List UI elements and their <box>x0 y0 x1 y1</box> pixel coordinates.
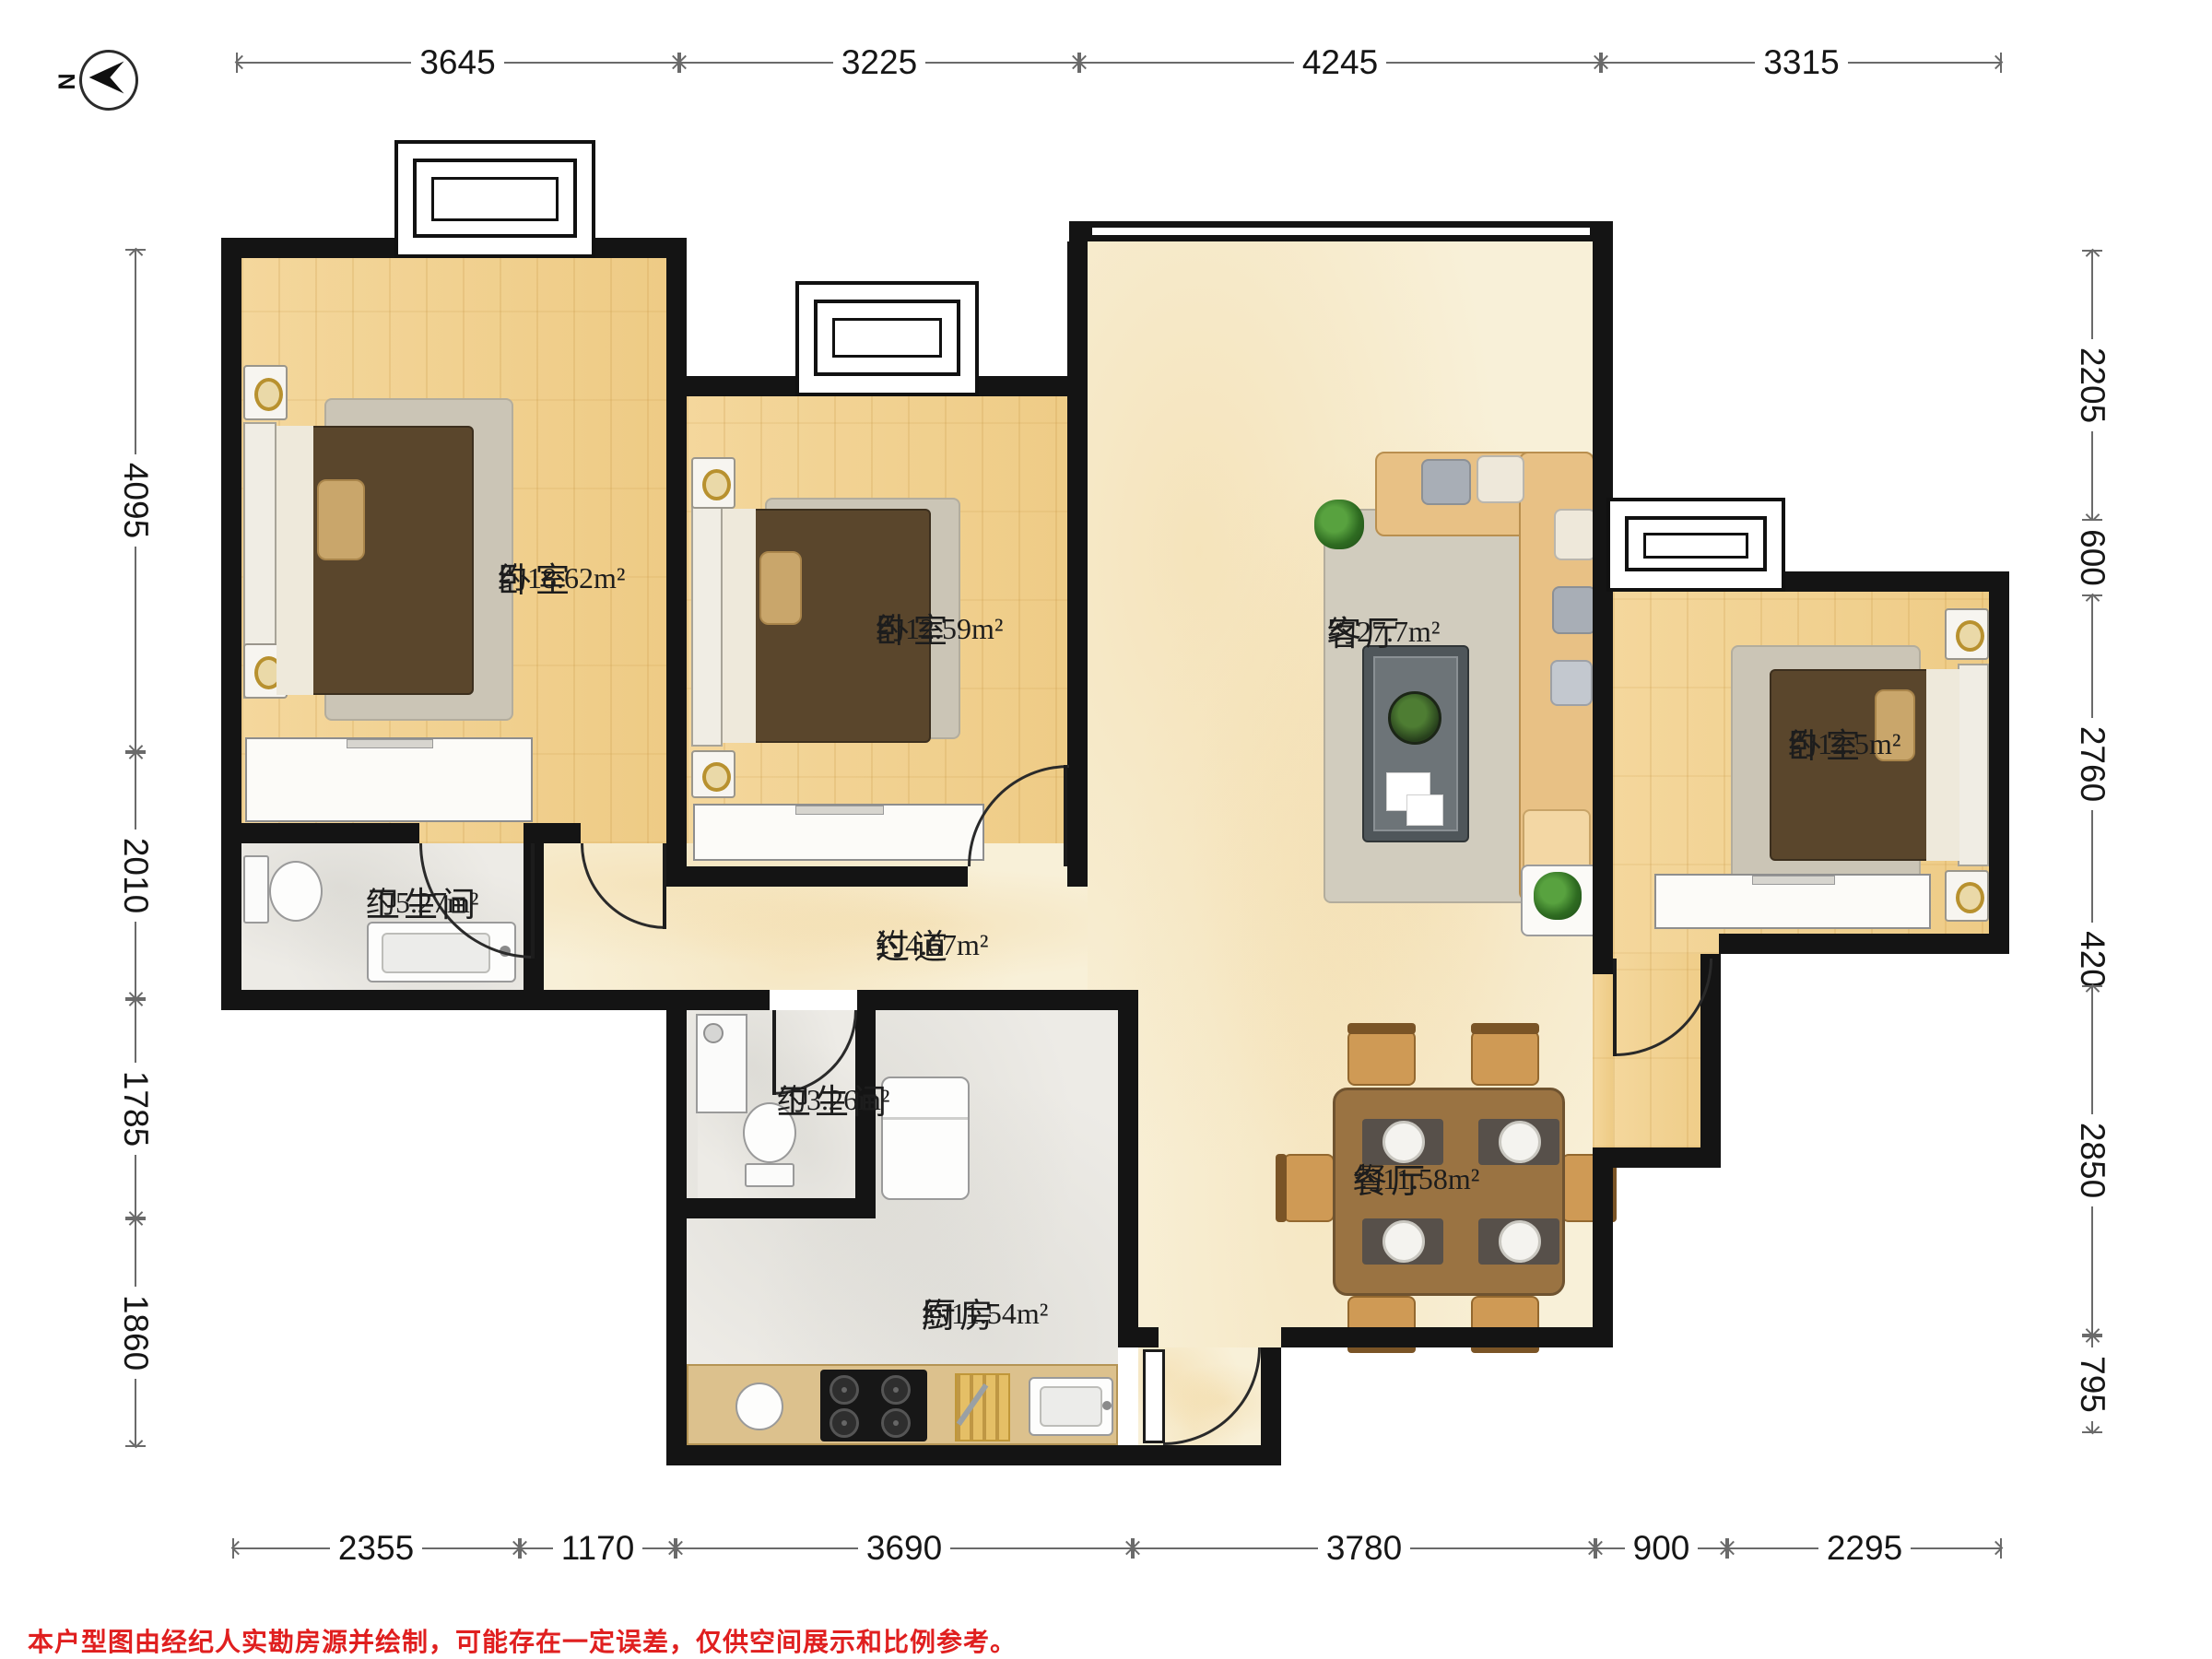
floorplan-page: 卧室约18.62m²卧室约12.59m²客厅约27.7m²卧室约12.5m²卫生… <box>0 0 2212 1659</box>
wall <box>221 238 241 1010</box>
door-leaf <box>663 843 666 929</box>
plate <box>1499 1220 1541 1263</box>
room-area: 约27.7m² <box>1327 616 1441 649</box>
sofa-pillow <box>1477 455 1524 503</box>
dimension-left: 1785 <box>117 999 154 1218</box>
window-bench <box>1654 874 1931 929</box>
plant-icon <box>1314 500 1364 549</box>
door-leaf <box>772 1010 776 1095</box>
nightstand <box>1945 870 1989 922</box>
dining-chair <box>1347 1030 1416 1086</box>
kitchen-bowl <box>735 1382 783 1430</box>
sofa-pillow <box>1552 586 1596 634</box>
potted-plant-icon <box>1388 691 1441 745</box>
wall <box>857 990 1138 1010</box>
toilet-bowl <box>269 861 323 922</box>
bed-sheet <box>1926 669 1959 861</box>
door-leaf <box>1064 765 1067 866</box>
wall <box>677 1445 1281 1465</box>
disclaimer-text: 本户型图由经纪人实勘房源并绘制，可能存在一定误差，仅供空间展示和比例参考。 <box>28 1622 1017 1659</box>
plate <box>1499 1121 1541 1163</box>
dimension-value: 1170 <box>553 1529 643 1568</box>
toilet-tank <box>243 855 269 924</box>
wall <box>1719 934 2009 954</box>
pillow <box>317 479 365 560</box>
wall <box>221 823 419 843</box>
wall <box>1281 1327 1613 1347</box>
compass-north-label: N <box>53 73 79 89</box>
chair-back <box>1471 1023 1539 1034</box>
nightstand <box>691 457 735 509</box>
toilet-tank <box>745 1163 794 1187</box>
floor-doorway-strip <box>1593 974 1613 1147</box>
chair-back <box>1276 1154 1287 1222</box>
dimension-top: 3225 <box>679 44 1079 81</box>
room-area: 约3.26m² <box>777 1084 890 1117</box>
dimension-value: 2295 <box>1818 1529 1911 1568</box>
wall <box>666 990 687 1465</box>
plant-icon <box>1534 872 1582 920</box>
wall <box>544 990 770 1010</box>
room-area: 约11.58m² <box>1353 1163 1479 1196</box>
stove-burner-icon <box>881 1408 911 1438</box>
wall <box>677 1198 876 1218</box>
dimension-right: 2205 <box>2074 250 2111 521</box>
nightstand <box>691 750 735 798</box>
dimension-value: 1785 <box>116 1063 155 1155</box>
dimension-bottom: 900 <box>1595 1530 1727 1567</box>
bed-headboard <box>691 505 723 747</box>
wall <box>1783 571 2009 592</box>
plate <box>1382 1220 1425 1263</box>
room-area: 约12.59m² <box>876 613 1004 646</box>
wall <box>666 238 687 843</box>
compass: N <box>79 50 133 105</box>
dimension-bottom: 2355 <box>232 1530 520 1567</box>
door-leaf <box>531 843 535 959</box>
dimension-value: 2355 <box>330 1529 422 1568</box>
dimension-bottom: 3780 <box>1133 1530 1595 1567</box>
nightstand <box>243 365 288 420</box>
nightstand <box>1945 608 1989 660</box>
shower-head-icon <box>703 1023 724 1043</box>
dimension-top: 3315 <box>1601 44 2002 81</box>
dimension-value: 600 <box>2073 521 2112 594</box>
wall <box>1067 376 1088 887</box>
dimension-bottom: 1170 <box>520 1530 676 1567</box>
bed-sheet <box>276 426 313 695</box>
dimension-right: 2850 <box>2074 985 2111 1335</box>
room-area: 约11.54m² <box>922 1298 1048 1331</box>
dimension-left: 4095 <box>117 249 154 752</box>
stove-burner-icon <box>881 1375 911 1405</box>
wall <box>221 238 396 258</box>
dimension-right: 2760 <box>2074 594 2111 934</box>
sofa-pillow <box>1550 660 1593 706</box>
dimension-value: 2205 <box>2073 339 2112 431</box>
bed-sheet <box>723 509 756 743</box>
window-bench <box>693 804 984 861</box>
stove-burner-icon <box>829 1375 859 1405</box>
sofa-pillow <box>1554 509 1596 560</box>
dimension-top: 4245 <box>1079 44 1601 81</box>
dining-chair <box>1471 1030 1539 1086</box>
dimension-value: 2850 <box>2073 1114 2112 1206</box>
dimension-top: 3645 <box>236 44 679 81</box>
dimension-value: 3315 <box>1755 43 1847 82</box>
dimension-value: 4095 <box>116 454 155 547</box>
sofa-pillow <box>1421 459 1471 505</box>
dimension-left: 1860 <box>117 1218 154 1447</box>
living-top-window <box>1092 228 1590 235</box>
dimension-value: 3225 <box>833 43 925 82</box>
dimension-value: 3645 <box>411 43 503 82</box>
pillow <box>759 551 802 625</box>
dimension-value: 3780 <box>1318 1529 1410 1568</box>
wall <box>687 376 797 396</box>
wall <box>1067 241 1088 376</box>
dimension-value: 4245 <box>1294 43 1386 82</box>
room-area: 约18.62m² <box>498 562 626 595</box>
wall <box>1593 241 1613 974</box>
room-area: 约4.67m² <box>876 929 989 962</box>
stove-burner-icon <box>829 1408 859 1438</box>
door-leaf <box>1613 959 1617 1056</box>
plate <box>1382 1121 1425 1163</box>
room-area: 约5.27m² <box>366 887 479 920</box>
room-area: 约12.5m² <box>1788 728 1901 761</box>
dimension-right: 420 <box>2074 934 2111 985</box>
wall <box>687 866 968 887</box>
wall <box>221 990 544 1010</box>
dining-chair <box>1283 1154 1335 1222</box>
dimension-bottom: 3690 <box>676 1530 1133 1567</box>
chair-back <box>1347 1023 1416 1034</box>
bay-window-frame <box>1643 533 1748 559</box>
wall <box>1261 1347 1281 1465</box>
dimension-left: 2010 <box>117 752 154 999</box>
entry-door-leaf <box>1143 1349 1165 1443</box>
wall <box>1989 571 2009 954</box>
wall <box>1118 1327 1159 1347</box>
sink-basin <box>1040 1386 1102 1427</box>
bay-window-frame <box>832 318 942 358</box>
wall <box>1613 1147 1721 1168</box>
wall <box>666 823 687 887</box>
dimension-value: 900 <box>1625 1529 1699 1568</box>
dimension-value: 1860 <box>116 1287 155 1379</box>
bed-headboard <box>1958 664 1989 866</box>
wall <box>1118 990 1138 1347</box>
faucet-icon <box>1102 1401 1112 1410</box>
dimension-value: 795 <box>2073 1347 2112 1421</box>
paper <box>1406 794 1443 826</box>
dimension-right: 600 <box>2074 521 2111 594</box>
dimension-right: 795 <box>2074 1335 2111 1433</box>
dimension-value: 2010 <box>116 829 155 922</box>
wall <box>1593 1147 1613 1347</box>
dimension-bottom: 2295 <box>1727 1530 2002 1567</box>
dimension-value: 3690 <box>858 1529 950 1568</box>
dimension-value: 2760 <box>2073 718 2112 810</box>
bay-window-frame <box>431 177 559 221</box>
wardrobe <box>245 737 533 822</box>
refrigerator <box>881 1077 970 1200</box>
